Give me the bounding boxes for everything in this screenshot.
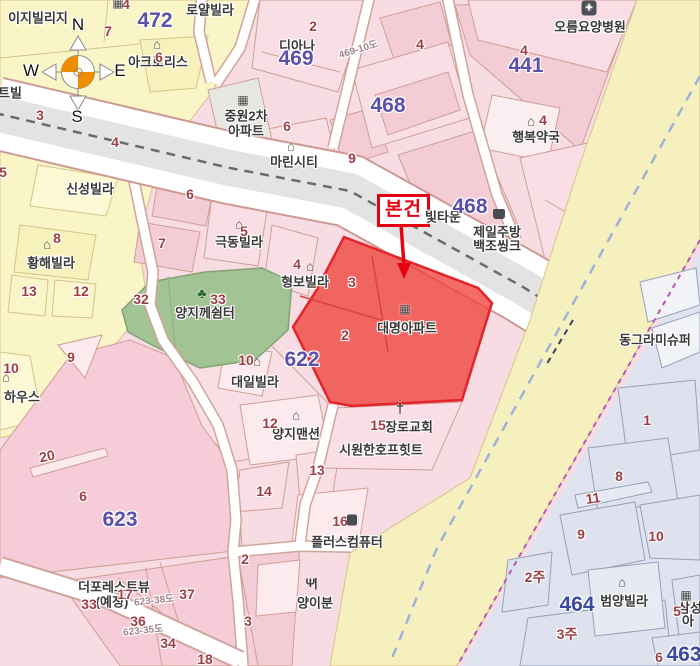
compass-east: E	[114, 61, 125, 81]
parcel-number: 9	[577, 526, 585, 542]
house-icon: ⌂	[287, 140, 295, 153]
poi-label: 형보빌라	[281, 272, 329, 291]
parcel-number: 2	[341, 327, 349, 343]
block-number: 463	[666, 643, 700, 666]
poi-label: 하우스	[4, 387, 40, 406]
parcel-number: 8	[53, 230, 61, 246]
map-base	[0, 0, 700, 666]
parcel-number: 4	[416, 36, 424, 52]
parcel-number: 20	[38, 447, 57, 466]
block-number: 441	[508, 54, 543, 78]
parcel-number: 5	[0, 164, 7, 180]
house-icon: ⌂	[153, 38, 161, 51]
house-icon: ⌂	[253, 355, 261, 368]
parcel-number: 32	[133, 291, 149, 307]
poi-label: 아파트	[228, 121, 264, 140]
parcel-number: 37	[179, 586, 195, 602]
block-number: 468	[452, 195, 487, 219]
parcel-number: 6	[655, 649, 663, 665]
compass-south: S	[71, 107, 82, 127]
house-icon: ⌂	[43, 238, 51, 251]
parcel-number: 10	[238, 352, 254, 368]
parcel-number: 15	[370, 417, 386, 433]
building-icon: ▦	[112, 0, 123, 9]
parcel-number: 18	[197, 651, 213, 666]
parcel-number: 33	[81, 596, 97, 612]
bag-icon	[347, 515, 357, 526]
parcel-number: 3	[244, 613, 252, 629]
house-icon: ⌂	[235, 218, 243, 231]
map-canvas[interactable]: N W E S 본건 이지빌리지로얄빌라아크로리스디아나중원2차아파트마린시티오…	[0, 0, 700, 666]
poi-label: 양지맨션	[272, 424, 320, 443]
poi-label: 플러스컴퓨터	[311, 532, 383, 551]
parcel-number: 11	[585, 489, 602, 507]
parcel-number: 9	[67, 349, 75, 365]
hospital-icon: +	[582, 1, 597, 16]
parcel-number: 2	[241, 551, 249, 567]
parcel-number: 8	[615, 468, 623, 484]
church-icon: †	[396, 401, 404, 415]
parcel-number: 5	[673, 603, 681, 619]
house-icon: ⌂	[306, 260, 314, 273]
parcel-number: 10	[648, 528, 664, 544]
parcel-number: 13	[21, 283, 37, 299]
parcel-number: 7	[104, 23, 112, 39]
poi-label: 범양빌라	[600, 591, 648, 610]
house-icon: ⌂	[292, 409, 300, 422]
house-icon: ⌂	[527, 115, 535, 128]
block-number: 472	[137, 9, 172, 33]
parcel-number: 6	[186, 186, 194, 202]
parcel-number: 14	[256, 483, 272, 499]
parcel-number: 7	[158, 235, 166, 251]
parcel-number: 1	[643, 412, 651, 428]
poi-label: 대일빌라	[231, 372, 279, 391]
parcel-number: 12	[73, 283, 89, 299]
poi-label: 극동빌라	[215, 232, 263, 251]
restaurant-icon: Ψ|	[305, 577, 316, 589]
block-number: 469	[278, 47, 313, 71]
poi-label: 행복약국	[512, 127, 560, 146]
tree-icon: ♣	[197, 286, 206, 300]
parcel-number: 3주	[557, 624, 578, 644]
poi-label: 황해빌라	[27, 253, 75, 272]
parcel-number: 16	[332, 513, 348, 529]
parcel-number: 13	[309, 462, 325, 478]
parcel-number: 4	[539, 112, 547, 128]
parcel-number: 17	[117, 586, 133, 602]
poi-label: 아	[682, 611, 694, 630]
parcel-number: 4	[111, 134, 119, 150]
compass-north: N	[72, 15, 84, 35]
parcel-number: 6	[79, 488, 87, 504]
block-number: 468	[370, 94, 405, 118]
house-icon: ⌂	[618, 576, 626, 589]
subject-annotation: 본건	[377, 194, 430, 227]
poi-label: 장로교회	[385, 417, 433, 436]
compass-west: W	[23, 61, 39, 81]
parcel-number: 4	[293, 256, 301, 272]
poi-label: 시원한호프힛트	[339, 440, 423, 459]
poi-label: 트빌	[0, 83, 22, 102]
block-number: 623	[102, 508, 137, 532]
building-icon: ▦	[680, 589, 691, 601]
poi-label: 백조씽크	[473, 236, 521, 255]
kettle-icon	[493, 209, 505, 219]
poi-label: 신성빌라	[66, 179, 114, 198]
parcel-number: 3	[36, 107, 44, 123]
poi-label: 양이분	[297, 593, 333, 612]
parcel-number: 2	[309, 18, 317, 34]
poi-label: 오름요양병원	[554, 17, 626, 36]
block-number: 622	[284, 348, 319, 372]
parcel-number: 6	[283, 118, 291, 134]
block-number: 464	[559, 593, 594, 617]
parcel-number: 2주	[525, 567, 546, 587]
building-icon: ▦	[399, 303, 410, 315]
poi-label: 이지빌리지	[8, 8, 68, 27]
parcel-number: 33	[210, 291, 226, 307]
parcel-number: 9	[348, 150, 356, 166]
parcel-number: 34	[160, 635, 176, 651]
poi-label: 동그라미슈퍼	[619, 330, 691, 349]
house-icon: ⌂	[2, 371, 10, 384]
poi-label: 로얄빌라	[186, 0, 234, 19]
parcel-number: 3	[348, 274, 356, 290]
parcel-number: 12	[262, 415, 278, 431]
building-icon: ▦	[237, 94, 248, 106]
poi-label: 대명아파트	[377, 318, 437, 337]
poi-label: 마린시티	[270, 152, 318, 171]
